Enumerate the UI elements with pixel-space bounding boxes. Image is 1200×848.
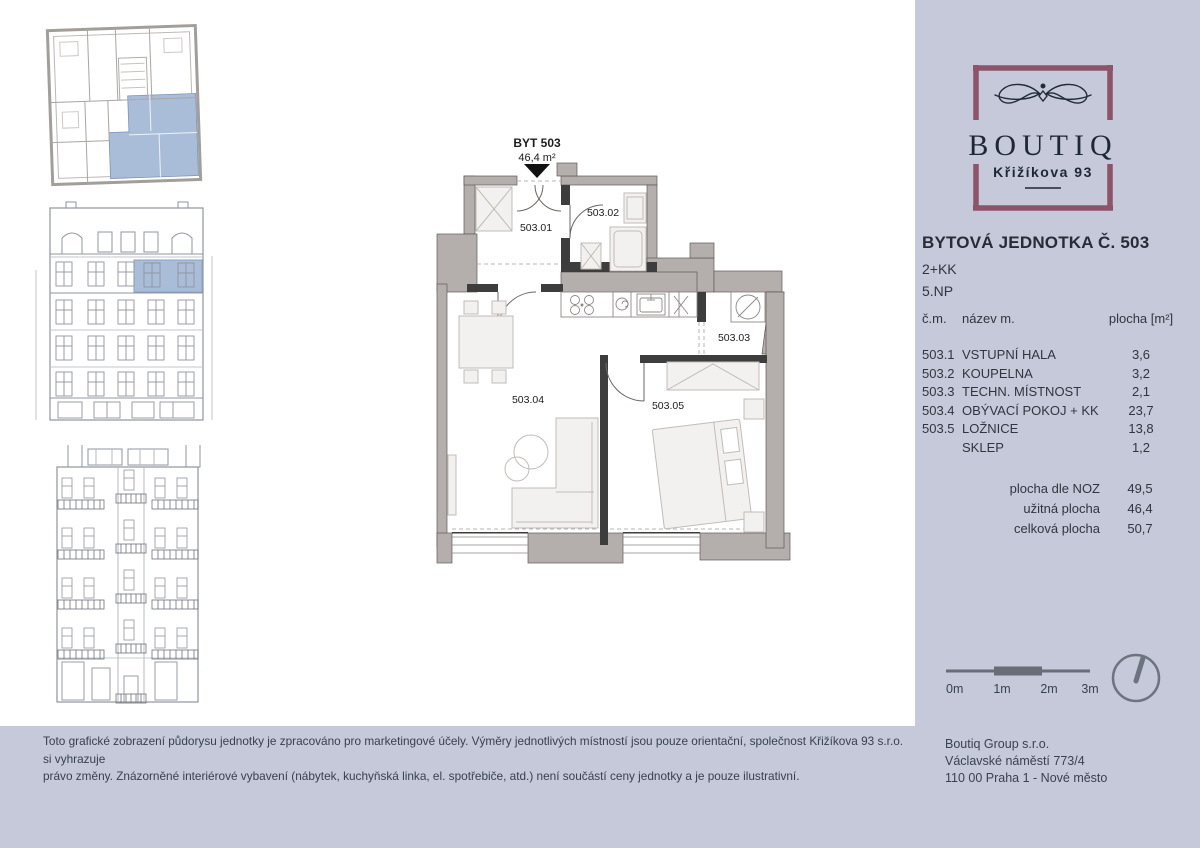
floorplan-title: BYT 503: [513, 136, 561, 150]
logo-flourish-icon: [995, 84, 1091, 103]
company-name: Boutiq Group s.r.o.: [945, 736, 1107, 753]
compass-icon: [1106, 646, 1166, 706]
col-header-num: č.m.: [922, 310, 962, 328]
thumbnail-facade-front: [28, 200, 218, 428]
area-summary: plocha dle NOZ 49,5 užitná plocha 46,4 c…: [922, 479, 1180, 539]
summary-row: plocha dle NOZ 49,5: [922, 479, 1180, 499]
floorplan-area: 46,4 m²: [518, 152, 556, 164]
room-num: 503.5: [922, 420, 962, 439]
col-header-name: název m.: [962, 310, 1102, 328]
floorplan-svg: BYT 503 46,4 m²: [420, 122, 820, 577]
summary-row: celková plocha 50,7: [922, 519, 1180, 539]
room-label-503-04: 503.04: [512, 394, 544, 406]
room-area: 1,2: [1102, 439, 1180, 458]
summary-label: užitná plocha: [922, 499, 1100, 519]
table-row: SKLEP 1,2: [922, 439, 1180, 458]
table-row: 503.5 LOŽNICE 13,8: [922, 420, 1180, 439]
room-num: 503.4: [922, 402, 962, 421]
company-street: Václavské náměstí 773/4: [945, 753, 1107, 770]
scale-label: 1m: [993, 682, 1010, 696]
summary-row: užitná plocha 46,4: [922, 499, 1180, 519]
table-header: č.m. název m. plocha [m²]: [922, 310, 1180, 328]
room-name: OBÝVACÍ POKOJ + KK: [962, 402, 1102, 421]
room-num: 503.3: [922, 383, 962, 402]
unit-title: BYTOVÁ JEDNOTKA Č. 503: [922, 233, 1149, 253]
room-num: 503.2: [922, 365, 962, 384]
disclaimer: Toto grafické zobrazení půdorysu jednotk…: [43, 733, 905, 786]
room-num: 503.1: [922, 346, 962, 365]
summary-label: plocha dle NOZ: [922, 479, 1100, 499]
room-label-503-01: 503.01: [520, 222, 552, 234]
summary-label: celková plocha: [922, 519, 1100, 539]
entrance-arrow-icon: [524, 164, 550, 178]
table-row: 503.1 VSTUPNÍ HALA 3,6: [922, 346, 1180, 365]
room-area: 2,1: [1102, 383, 1180, 402]
brand-address: Křižíkova 93: [993, 164, 1093, 180]
company-city: 110 00 Praha 1 - Nové město: [945, 770, 1107, 787]
room-area: 3,2: [1102, 365, 1180, 384]
scale-bar: 0m 1m 2m 3m: [938, 650, 1108, 700]
summary-value: 49,5: [1100, 479, 1180, 499]
thumbnail-facade-rear: [40, 445, 215, 723]
room-name: TECHN. MÍSTNOST: [962, 383, 1102, 402]
room-name: LOŽNICE: [962, 420, 1102, 439]
thumbnail-floor-overview: [35, 10, 215, 200]
col-header-area: plocha [m²]: [1102, 310, 1180, 328]
table-row: 503.3 TECHN. MÍSTNOST 2,1: [922, 383, 1180, 402]
table-row: 503.2 KOUPELNA 3,2: [922, 365, 1180, 384]
room-area: 23,7: [1102, 402, 1180, 421]
boutiq-logo: BOUTIQ Křižíkova 93: [968, 60, 1118, 216]
summary-value: 46,4: [1100, 499, 1180, 519]
scale-label: 2m: [1040, 682, 1057, 696]
unit-floor: 5.NP: [922, 283, 953, 299]
room-name: SKLEP: [962, 439, 1102, 458]
room-area: 3,6: [1102, 346, 1180, 365]
room-num: [922, 439, 962, 458]
disclaimer-line-2: právo změny. Znázorněné interiérové vyba…: [43, 768, 905, 786]
table-row: 503.4 OBÝVACÍ POKOJ + KK 23,7: [922, 402, 1180, 421]
kitchen-counter: [561, 292, 765, 322]
brochure-page: BYT 503 46,4 m²: [0, 0, 1200, 848]
room-table: č.m. název m. plocha [m²] 503.1 VSTUPNÍ …: [922, 310, 1180, 457]
room-label-503-02: 503.02: [587, 207, 619, 219]
scale-label: 3m: [1081, 682, 1098, 696]
summary-value: 50,7: [1100, 519, 1180, 539]
room-area: 13,8: [1102, 420, 1180, 439]
brand-name: BOUTIQ: [968, 129, 1117, 162]
unit-layout: 2+KK: [922, 261, 957, 277]
room-label-503-05: 503.05: [652, 400, 684, 412]
disclaimer-line-1: Toto grafické zobrazení půdorysu jednotk…: [43, 733, 905, 768]
room-name: KOUPELNA: [962, 365, 1102, 384]
scale-label: 0m: [946, 682, 963, 696]
room-name: VSTUPNÍ HALA: [962, 346, 1102, 365]
company-address: Boutiq Group s.r.o. Václavské náměstí 77…: [945, 736, 1107, 787]
room-label-503-03: 503.03: [718, 332, 750, 344]
